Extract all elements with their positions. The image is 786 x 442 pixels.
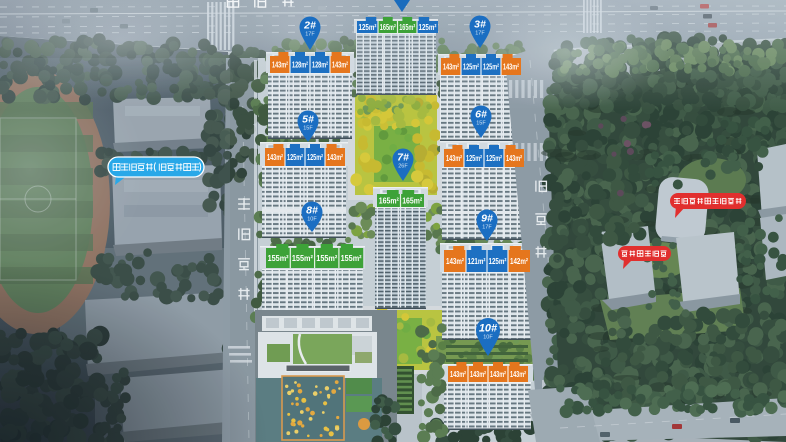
- svg-text:143m²: 143m²: [446, 257, 464, 266]
- svg-text:15F: 15F: [303, 126, 313, 132]
- svg-text:125m²: 125m²: [486, 154, 502, 163]
- svg-text:10#: 10#: [479, 323, 498, 335]
- svg-text:10F: 10F: [307, 217, 317, 223]
- svg-text:2#: 2#: [303, 20, 316, 32]
- svg-text:125m²: 125m²: [307, 153, 323, 162]
- svg-text:125m²: 125m²: [489, 257, 507, 266]
- svg-text:143m²: 143m²: [503, 62, 519, 71]
- svg-text:121m²: 121m²: [468, 257, 486, 266]
- svg-text:5#: 5#: [302, 114, 314, 126]
- svg-text:125m²: 125m²: [463, 62, 479, 71]
- svg-text:165m²: 165m²: [399, 23, 415, 32]
- svg-text:165m²: 165m²: [402, 196, 422, 205]
- svg-text:9#: 9#: [481, 213, 493, 225]
- svg-text:7#: 7#: [397, 152, 409, 164]
- svg-text:155m²: 155m²: [268, 254, 289, 263]
- svg-text:8#: 8#: [306, 205, 318, 217]
- svg-text:143m²: 143m²: [327, 153, 343, 162]
- svg-text:165m²: 165m²: [380, 23, 396, 32]
- svg-text:143m²: 143m²: [272, 60, 288, 69]
- svg-text:10F: 10F: [483, 335, 493, 341]
- svg-text:17F: 17F: [305, 32, 315, 38]
- svg-text:128m²: 128m²: [292, 60, 308, 69]
- svg-text:17F: 17F: [475, 31, 485, 37]
- svg-text:15F: 15F: [476, 121, 486, 127]
- svg-text:143m²: 143m²: [446, 154, 462, 163]
- svg-text:143m²: 143m²: [332, 60, 348, 69]
- svg-text:155m²: 155m²: [316, 254, 337, 263]
- svg-text:155m²: 155m²: [341, 254, 362, 263]
- svg-text:6#: 6#: [475, 109, 487, 121]
- svg-text:125m²: 125m²: [419, 23, 437, 32]
- svg-text:142m²: 142m²: [510, 257, 528, 266]
- svg-text:165m²: 165m²: [379, 196, 399, 205]
- svg-text:128m²: 128m²: [312, 60, 328, 69]
- svg-text:3#: 3#: [474, 19, 486, 31]
- svg-text:143m²: 143m²: [450, 370, 466, 379]
- svg-text:143m²: 143m²: [506, 154, 522, 163]
- svg-text:17F: 17F: [482, 225, 492, 231]
- svg-text:143m²: 143m²: [443, 62, 459, 71]
- svg-text:143m²: 143m²: [470, 370, 486, 379]
- svg-text:155m²: 155m²: [292, 254, 313, 263]
- svg-text:143m²: 143m²: [267, 153, 283, 162]
- svg-text:143m²: 143m²: [490, 370, 506, 379]
- svg-text:125m²: 125m²: [466, 154, 482, 163]
- svg-text:125m²: 125m²: [483, 62, 499, 71]
- svg-text:125m²: 125m²: [287, 153, 303, 162]
- svg-text:143m²: 143m²: [510, 370, 526, 379]
- svg-text:26F: 26F: [398, 164, 408, 170]
- svg-text:125m²: 125m²: [359, 23, 377, 32]
